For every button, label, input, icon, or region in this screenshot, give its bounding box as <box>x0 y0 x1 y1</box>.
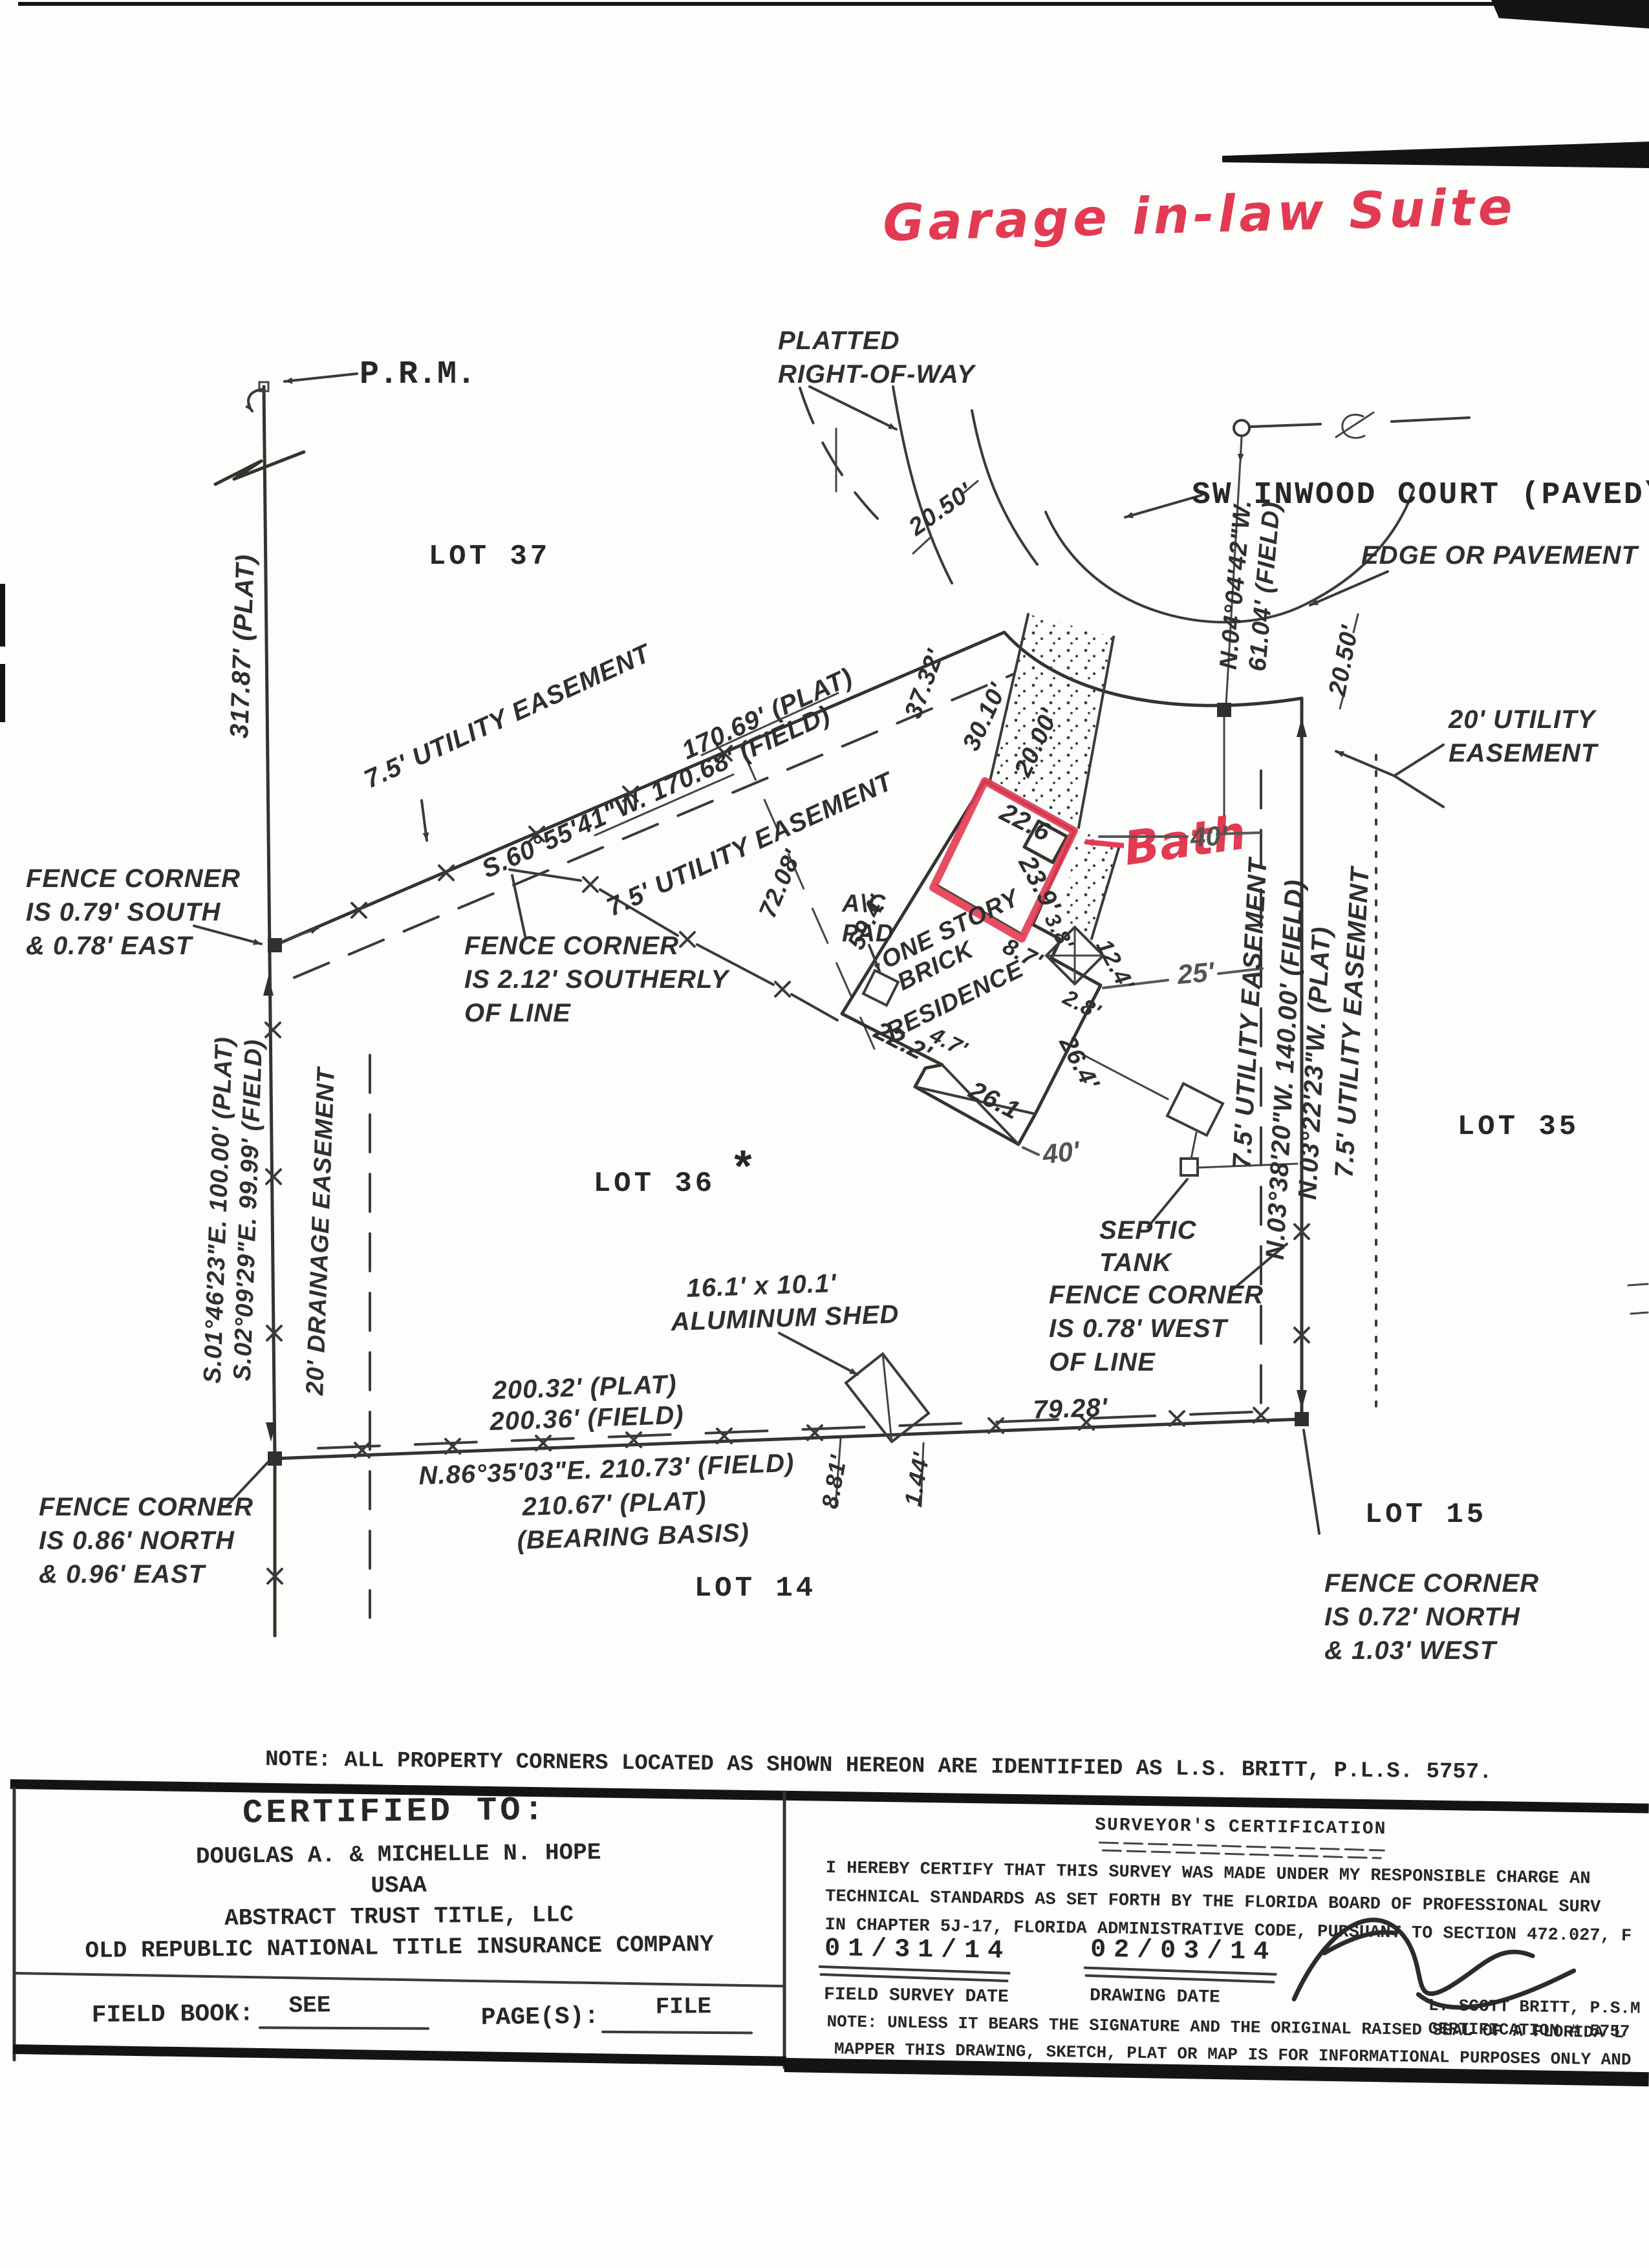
pencil-40b-line <box>1023 1148 1039 1155</box>
label-pencil-40a: 40' <box>1189 820 1229 853</box>
handwritten-title: Garage in-law Suite <box>882 178 1517 253</box>
monument-sw-corner <box>268 1451 282 1466</box>
label-shed-1: 16.1' x 10.1' <box>686 1269 837 1303</box>
certification-block: SURVEYOR'S CERTIFICATION I HEREBY CERTIF… <box>819 1812 1643 2070</box>
label-shed-144: 1.44' <box>899 1450 934 1508</box>
certification-body-1: I HEREBY CERTIFY THAT THIS SURVEY WAS MA… <box>826 1859 1591 1889</box>
label-septic-2: TANK <box>1099 1248 1173 1277</box>
label-dim-3732: 37.32' <box>900 645 949 722</box>
fence-note-nw-2: IS 0.79' SOUTH <box>26 898 221 926</box>
label-lot-15: LOT 15 <box>1365 1499 1487 1531</box>
pencil-lines <box>1023 833 1262 1155</box>
field-survey-date-underline <box>819 1967 1009 1981</box>
scan-edge-left-mark-1 <box>0 584 5 647</box>
field-book-label: FIELD BOOK: <box>92 2000 254 2029</box>
scan-corner-top-right <box>1491 0 1649 28</box>
label-prm: P.R.M. <box>360 356 476 393</box>
label-edge-of-pavement: EDGE OR PAVEMENT <box>1361 541 1639 570</box>
road-dashed-arc <box>800 388 878 519</box>
box-bottom-bar-left <box>13 2044 786 2066</box>
label-shed-2: ALUMINUM SHED <box>670 1300 900 1336</box>
label-tie-7208: 72.08' <box>754 846 807 923</box>
fence-note-sw-3: & 0.96' EAST <box>39 1560 207 1589</box>
certified-name-2: USAA <box>371 1872 427 1899</box>
septic-tank-rect <box>1167 1084 1223 1135</box>
prm-leader <box>285 374 357 381</box>
fence-note-nw-3: & 0.78' EAST <box>26 932 194 960</box>
drawing-date-underline <box>1085 1968 1276 1982</box>
fence-mid-leader <box>512 875 525 936</box>
line-break-symbol <box>215 452 304 484</box>
fence-note-se-2: IS 0.72' NORTH <box>1324 1603 1520 1631</box>
label-asterisk: * <box>729 1146 757 1197</box>
label-south-plat2: 210.67' (PLAT) <box>521 1486 707 1521</box>
fence-note-sw-1: FENCE CORNER <box>39 1493 253 1521</box>
certification-body-2: TECHNICAL STANDARDS AS SET FORTH BY THE … <box>825 1887 1601 1918</box>
label-south-7928: 79.28' <box>1033 1393 1109 1424</box>
fence-note-mid-2: IS 2.12' SOUTHERLY <box>464 965 730 994</box>
fence-note-se-1: FENCE CORNER <box>1324 1569 1539 1598</box>
label-lot-36: LOT 36 <box>594 1168 715 1200</box>
corners-note: NOTE: ALL PROPERTY CORNERS LOCATED AS SH… <box>265 1748 1493 1785</box>
shed-interior-line <box>883 1354 892 1442</box>
drawing-date-value: 02/03/14 <box>1090 1936 1277 1967</box>
fence-note-sw-2: IS 0.86' NORTH <box>39 1526 235 1555</box>
septic-feed-line <box>1081 1054 1297 1168</box>
dim-arrow-east-down <box>1297 1390 1307 1409</box>
ac-pad-square <box>863 970 898 1005</box>
fence-se-leader <box>1304 1430 1319 1534</box>
field-survey-date-label: FIELD SURVEY DATE <box>824 1985 1009 2007</box>
scanned-survey-page: Garage in-law Suite <box>0 0 1649 2268</box>
pages-label: PAGE(S): <box>481 2003 599 2032</box>
label-pencil-40b: 40' <box>1040 1135 1082 1170</box>
util20-arrow <box>1336 751 1394 776</box>
label-dim-2050b: 20.50' <box>1324 623 1364 699</box>
dim-arrow-east-up <box>1297 718 1307 737</box>
label-shed-881: 8.81' <box>816 1453 852 1511</box>
dim-arrow-west-up <box>263 976 274 996</box>
centerline-monument-circle <box>1234 420 1249 436</box>
monument-arc-corner <box>1217 703 1231 717</box>
centerline-group <box>1234 412 1469 462</box>
label-pencil-25: 25' <box>1176 956 1217 990</box>
label-south-field: 200.36' (FIELD) <box>489 1401 685 1436</box>
south-fence-dashed <box>318 1411 1286 1448</box>
label-septic-1: SEPTIC <box>1099 1216 1197 1245</box>
monument-nw-corner <box>268 938 282 952</box>
label-south-plat: 200.32' (PLAT) <box>491 1370 677 1405</box>
label-east-easement-w: 7.5' UTILITY EASEMENT <box>1227 855 1272 1169</box>
field-survey-date-value: 01/31/14 <box>824 1934 1011 1966</box>
certification-heading: SURVEYOR'S CERTIFICATION <box>1095 1815 1387 1839</box>
certification-note-1: NOTE: UNLESS IT BEARS THE SIGNATURE AND … <box>826 2012 1624 2042</box>
label-lot-35: LOT 35 <box>1458 1111 1579 1143</box>
fence-note-mid-3: OF LINE <box>464 999 571 1027</box>
label-west-317: 317.87' (PLAT) <box>225 553 260 738</box>
util20-bracket <box>1394 745 1443 807</box>
scan-streak-top-right <box>1222 142 1649 168</box>
road-throat-west-pavement-arc <box>972 411 1037 564</box>
fence-note-nw-1: FENCE CORNER <box>26 864 241 893</box>
certified-name-1: DOUGLAS A. & MICHELLE N. HOPE <box>196 1839 601 1870</box>
certified-name-4: OLD REPUBLIC NATIONAL TITLE INSURANCE CO… <box>85 1931 714 1964</box>
centerline-bar-right <box>1392 418 1469 422</box>
label-lot-37: LOT 37 <box>429 540 550 573</box>
boundary-west <box>264 387 275 1459</box>
shed-leader <box>779 1333 857 1375</box>
prm-hook-arrow <box>248 389 264 411</box>
nw-corner-arrow <box>282 928 318 941</box>
label-lot-14: LOT 14 <box>695 1572 816 1605</box>
easement-ne-arrow <box>422 800 427 840</box>
scan-edge-left-mark-2 <box>0 664 5 722</box>
fence-note-e-3: OF LINE <box>1049 1348 1156 1376</box>
handwritten-bath: Bath <box>1121 805 1249 876</box>
label-dim-47: 4.7' <box>925 1022 972 1062</box>
platted-row-leader <box>810 387 896 429</box>
centerline-bar-left <box>1251 424 1320 427</box>
surveyor-name: L. SCOTT BRITT, P.S.M <box>1428 1996 1641 2018</box>
certified-heading: CERTIFIED TO: <box>242 1792 547 1833</box>
label-platted-row-2: RIGHT-OF-WAY <box>778 360 976 389</box>
pages-value: FILE <box>655 1993 711 2020</box>
certified-name-3: ABSTRACT TRUST TITLE, LLC <box>224 1901 574 1932</box>
monument-se-corner <box>1295 1412 1309 1426</box>
scan-edge-top-line <box>18 2 1500 6</box>
label-east-easement-e: 7.5' UTILITY EASEMENT <box>1330 864 1374 1178</box>
label-drainage-easement: 20' DRAINAGE EASEMENT <box>301 1066 340 1396</box>
label-bearing-basis: (BEARING BASIS) <box>517 1518 750 1555</box>
fence-nw-leader <box>194 926 261 944</box>
street-leader <box>1125 495 1202 517</box>
centerline-stem-arrow <box>1240 437 1242 462</box>
label-platted-row-1: PLATTED <box>778 326 900 355</box>
road-throat-west-rw-arc <box>893 387 952 583</box>
box-inner-horizontal <box>14 1973 784 1986</box>
label-util20-1: 20' UTILITY <box>1448 705 1597 734</box>
label-util20-2: EASEMENT <box>1449 739 1599 767</box>
edge-cut-dashes <box>1628 1284 1648 1314</box>
drawing-date-label: DRAWING DATE <box>1090 1986 1220 2008</box>
certified-to-block: CERTIFIED TO: DOUGLAS A. & MICHELLE N. H… <box>83 1789 751 2040</box>
certification-heading-underline <box>1099 1843 1384 1858</box>
fence-note-e-1: FENCE CORNER <box>1049 1281 1264 1309</box>
pages-underline <box>603 2030 751 2034</box>
septic-lid-square <box>1181 1159 1198 1175</box>
field-book-value: SEE <box>288 1992 330 2019</box>
label-ne-easement-a: 7.5' UTILITY EASEMENT <box>360 638 656 794</box>
field-book-underline <box>260 2026 428 2031</box>
fence-note-se-3: & 1.03' WEST <box>1324 1636 1498 1665</box>
label-south-bearing: N.86°35'03"E. 210.73' (FIELD) <box>418 1449 795 1490</box>
fence-note-e-2: IS 0.78' WEST <box>1049 1314 1229 1343</box>
fence-note-mid-1: FENCE CORNER <box>464 932 679 960</box>
centerline-symbol-icon <box>1336 412 1374 438</box>
